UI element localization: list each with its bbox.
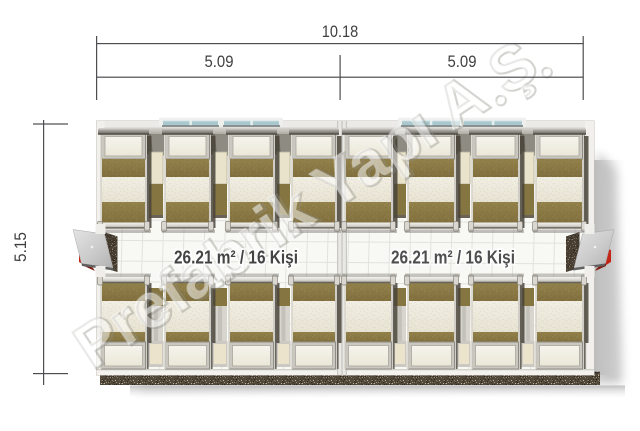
svg-text:5.09: 5.09: [205, 52, 234, 71]
svg-text:5.15: 5.15: [11, 232, 30, 262]
svg-text:10.18: 10.18: [322, 22, 359, 41]
svg-text:26.21 m² / 16 Kişi: 26.21 m² / 16 Kişi: [391, 247, 515, 268]
svg-text:5.09: 5.09: [448, 52, 477, 71]
svg-text:26.21 m² / 16 Kişi: 26.21 m² / 16 Kişi: [174, 247, 298, 268]
